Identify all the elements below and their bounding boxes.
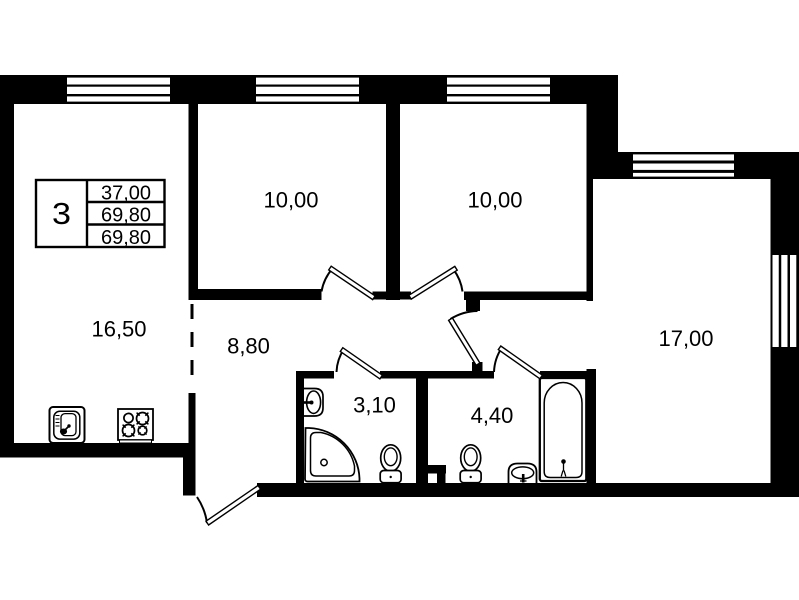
svg-text:69,80: 69,80 (101, 227, 151, 249)
svg-text:17,00: 17,00 (658, 326, 713, 351)
svg-text:16,50: 16,50 (91, 317, 146, 342)
svg-text:69,80: 69,80 (101, 205, 151, 227)
svg-text:8,80: 8,80 (227, 334, 270, 359)
svg-text:3,10: 3,10 (353, 393, 396, 418)
svg-text:10,00: 10,00 (467, 188, 522, 213)
svg-text:10,00: 10,00 (263, 188, 318, 213)
svg-text:3: 3 (52, 196, 71, 231)
svg-text:37,00: 37,00 (101, 183, 151, 205)
svg-text:4,40: 4,40 (471, 403, 514, 428)
